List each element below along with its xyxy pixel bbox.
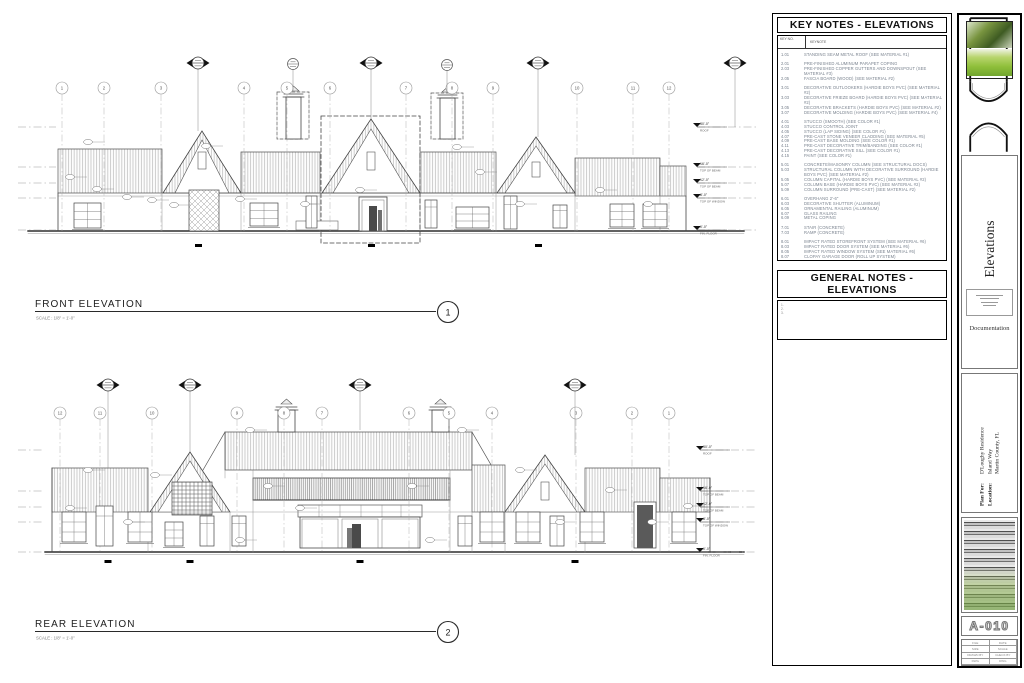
key-no-column-header: KEY NO.	[778, 36, 806, 48]
level-value: 0'-0"	[700, 225, 708, 229]
keynote-tag	[453, 144, 462, 149]
keynote-tag	[170, 202, 179, 207]
grid-label: 11	[631, 86, 636, 91]
grid-label: 10	[575, 86, 580, 91]
key-notes-header: KEY NOTES - ELEVATIONS	[777, 17, 947, 33]
location-line1: Island Way	[987, 432, 993, 474]
level-value: 16'-0"	[703, 486, 713, 490]
general-note-item: 3.	[781, 311, 946, 315]
level-label: ROOF	[703, 452, 712, 456]
level-label: FIN. FLOOR	[703, 554, 721, 558]
keynote-tag	[236, 537, 245, 542]
keynote-row: 5.09COLUMN SURROUND (PRE-CAST) (SEE MATE…	[778, 188, 944, 193]
info-cell: DWG	[990, 659, 1018, 665]
keynote-tag	[644, 201, 653, 206]
level-value: 12'-0"	[703, 502, 713, 506]
issue-info-box: FILEDATESIZESCALEDRAWN BYCHECK BYDWGDWG	[961, 639, 1018, 666]
keynote-tag	[648, 519, 657, 524]
notes-panel: KEY NOTES - ELEVATIONS KEY NO. KEYNOTE 1…	[772, 13, 952, 666]
plan-for-label: Plan For:	[979, 474, 985, 506]
keynote-column-header: KEYNOTE	[806, 36, 946, 48]
level-value: 30'-0"	[703, 445, 713, 449]
level-label: FIN. FLOOR	[700, 232, 718, 236]
keynote-tag	[202, 143, 211, 148]
level-label: TOP OF BEAM	[703, 493, 724, 497]
grid-label: 12	[667, 86, 672, 91]
lattice-door	[189, 190, 219, 231]
keynote-tag	[516, 467, 525, 472]
keynote-tag	[236, 196, 245, 201]
grid-label: 11	[98, 411, 103, 416]
firm-info	[966, 289, 1013, 316]
grid-label: 10	[150, 411, 155, 416]
discipline-title: Elevations	[982, 221, 998, 278]
elevation-drawings: 123456789101112121110987654321 30'-0"ROO…	[0, 0, 770, 683]
front-number: 1	[445, 308, 450, 318]
keynote-tag	[151, 472, 160, 477]
cover-photo	[966, 21, 1013, 79]
level-label: ROOF	[700, 129, 709, 133]
keynote-row: 8.07CLOPAY GARAGE DOOR (ROLL UP SYSTEM)	[778, 255, 944, 260]
plan-for-value: D'Loughy Residence	[979, 427, 985, 474]
sheet-number-box: A-010	[961, 616, 1018, 636]
location-label: Location:	[987, 474, 1000, 506]
keynote-tag	[684, 503, 693, 508]
discipline-box: Elevations Documentation	[961, 155, 1018, 369]
phase-label: Documentation	[962, 325, 1017, 332]
front-elevation-label: FRONT ELEVATION 1 SCALE : 1/8" = 1'-0"	[35, 299, 459, 323]
level-label: TOP OF BEAM	[700, 185, 721, 189]
sheet-number: A-010	[969, 619, 1009, 633]
general-notes-header: GENERAL NOTES - ELEVATIONS	[777, 270, 947, 298]
seal-image	[964, 520, 1015, 610]
keynote-tag	[124, 519, 133, 524]
front-elevation-drawing	[28, 86, 744, 247]
seal-image-box	[961, 517, 1018, 613]
keynote-tag	[264, 483, 273, 488]
level-value: 12'-0"	[700, 178, 710, 182]
keynote-tag	[556, 519, 565, 524]
keynote-tag	[356, 187, 365, 192]
rear-scale: SCALE : 1/8" = 1'-0"	[36, 636, 75, 641]
keynote-tag	[66, 174, 75, 179]
level-value: 16'-0"	[700, 162, 710, 166]
drawing-sheet: 123456789101112121110987654321 30'-0"ROO…	[0, 0, 1024, 683]
keynote-tag	[426, 537, 435, 542]
keynote-row: 7.03RAMP (CONCRETE)	[778, 231, 944, 236]
title-block: Elevations Documentation Plan For: D'Lou…	[957, 13, 1022, 668]
keynote-tag	[301, 201, 310, 206]
keynote-tag	[408, 483, 417, 488]
keynote-row: 1.01STANDING SEAM METAL ROOF (SEE MATERI…	[778, 53, 944, 58]
keynote-row: 2.05FASCIA BOARD (WOOD) (SEE MATERIAL #2…	[778, 77, 944, 82]
front-scale: SCALE : 1/8" = 1'-0"	[36, 316, 75, 321]
keynote-tag	[246, 427, 255, 432]
level-value: 30'-0"	[700, 122, 710, 126]
keynote-tag	[93, 186, 102, 191]
key-notes-table: KEY NO. KEYNOTE 1.01STANDING SEAM METAL …	[777, 35, 947, 261]
general-notes-list: 1.2.3.	[777, 300, 947, 340]
grid-label: 12	[58, 411, 63, 416]
keynote-tag	[296, 505, 305, 510]
level-label: TOP OF BEAM	[700, 169, 721, 173]
rear-title: REAR ELEVATION	[35, 619, 136, 630]
level-label: TOP OF BEAM	[703, 509, 724, 513]
rear-elevation-label: REAR ELEVATION 2 SCALE : 1/8" = 1'-0"	[35, 619, 459, 643]
project-box: Plan For: D'Loughy Residence Location: I…	[961, 373, 1018, 513]
keynote-tag	[148, 197, 157, 202]
keynote-tag	[84, 467, 93, 472]
rear-number: 2	[445, 628, 450, 638]
keynote-tag	[84, 139, 93, 144]
keynote-tag	[596, 187, 605, 192]
info-cell: DWG	[962, 659, 990, 665]
keynote-row: 3.07DECORATIVE MOLDING (HARDIE BOYS PVC)…	[778, 111, 944, 116]
keynote-tag	[516, 201, 525, 206]
front-title: FRONT ELEVATION	[35, 299, 143, 310]
keynote-row: 6.09METAL COPING	[778, 216, 944, 221]
keynote-tag	[606, 487, 615, 492]
level-label: TOP OF WINDOW	[703, 524, 728, 528]
keynote-tag	[66, 505, 75, 510]
level-label: TOP OF WINDOW	[700, 200, 725, 204]
level-value: 0'-0"	[703, 547, 711, 551]
level-value: 8'-0"	[703, 517, 711, 521]
keynote-tag	[476, 169, 485, 174]
level-value: 8'-0"	[700, 193, 708, 197]
location-line2: Martin County, FL	[994, 432, 1000, 474]
keynote-tag	[123, 194, 132, 199]
keynote-tag	[458, 427, 467, 432]
keynote-row: 4.15PAINT (SEE COLOR #1)	[778, 154, 944, 159]
